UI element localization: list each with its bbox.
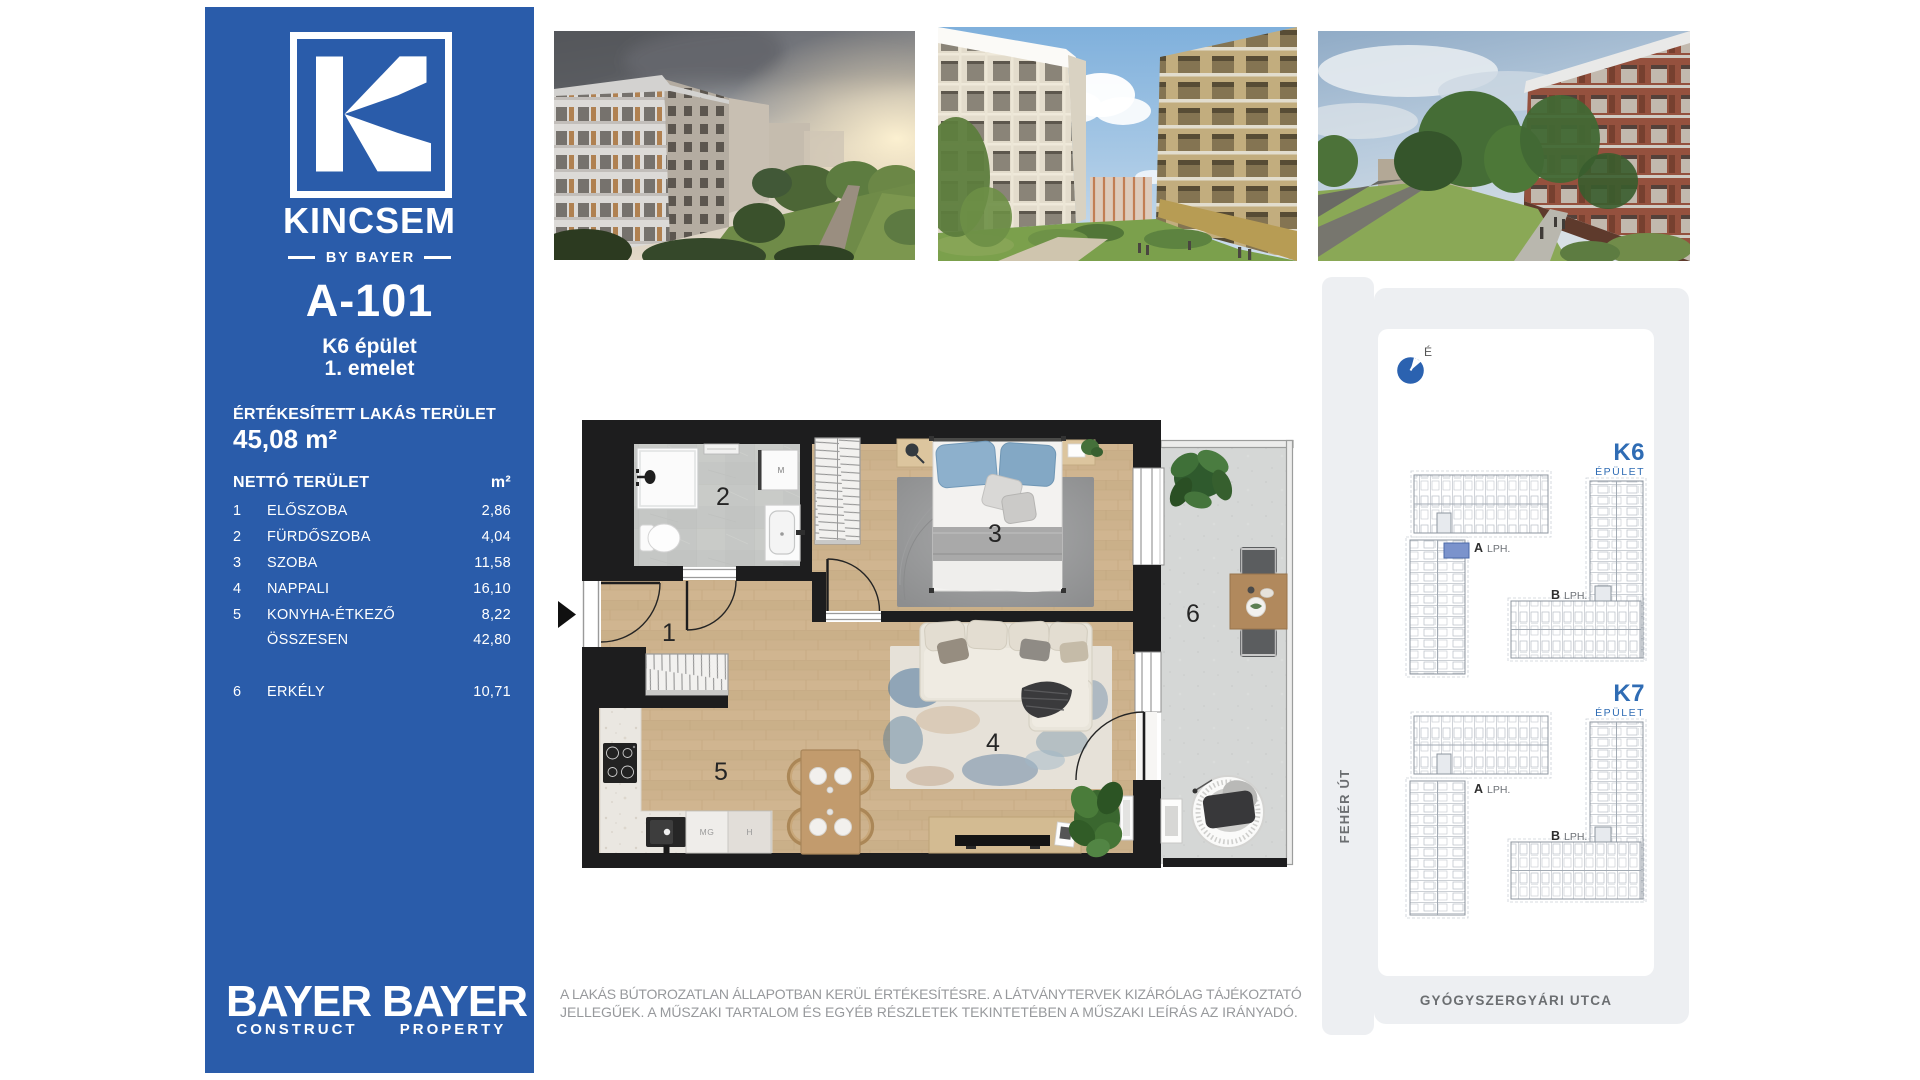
- svg-text:ÉPÜLET: ÉPÜLET: [1595, 706, 1645, 719]
- svg-text:LPH.: LPH.: [1487, 784, 1510, 796]
- svg-text:A: A: [1474, 782, 1483, 796]
- svg-text:GYÓGYSZERGYÁRI UTCA: GYÓGYSZERGYÁRI UTCA: [1420, 993, 1612, 1008]
- svg-text:MG: MG: [700, 827, 715, 837]
- svg-text:LPH.: LPH.: [1564, 590, 1587, 602]
- svg-text:ÉPÜLET: ÉPÜLET: [1595, 465, 1645, 478]
- svg-text:6: 6: [1186, 600, 1200, 628]
- svg-text:K7: K7: [1613, 680, 1645, 707]
- svg-text:5: 5: [714, 758, 728, 786]
- svg-text:FEHÉR ÚT: FEHÉR ÚT: [1337, 769, 1352, 844]
- svg-text:M: M: [778, 466, 785, 475]
- svg-text:A: A: [1474, 541, 1483, 555]
- svg-text:LPH.: LPH.: [1564, 831, 1587, 843]
- svg-text:LPH.: LPH.: [1487, 543, 1510, 555]
- svg-text:3: 3: [988, 520, 1002, 548]
- svg-text:B: B: [1551, 588, 1560, 602]
- svg-text:H: H: [746, 827, 752, 837]
- svg-text:É: É: [1424, 344, 1432, 359]
- svg-text:4: 4: [986, 729, 1000, 757]
- svg-text:B: B: [1551, 829, 1560, 843]
- svg-text:2: 2: [716, 483, 730, 511]
- svg-text:K6: K6: [1613, 439, 1645, 466]
- svg-text:1: 1: [662, 619, 676, 647]
